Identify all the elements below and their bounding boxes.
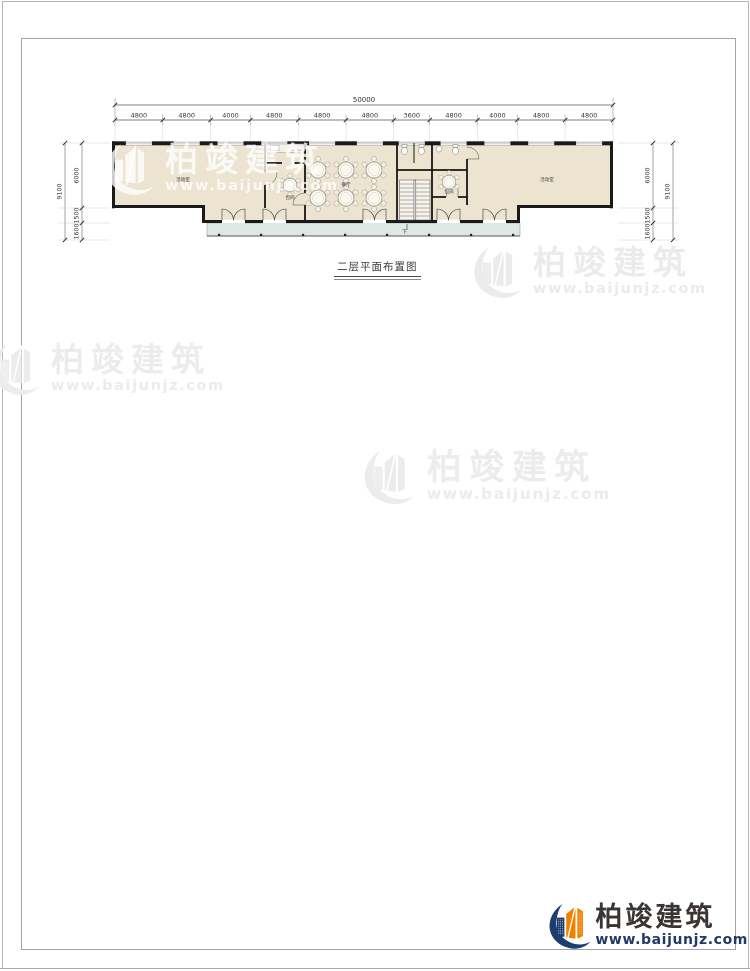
watermark-name: 柏竣建筑 <box>51 343 225 376</box>
dim-right-overall: 9100 <box>665 183 672 199</box>
sheet-bottom-edge <box>0 968 750 970</box>
dim-seg: 4800 <box>445 112 462 120</box>
dim-seg: 4800 <box>581 112 598 120</box>
dim-left-seg: 6000 <box>74 167 81 183</box>
dim-left-seg: 1500 <box>74 207 81 223</box>
drawing-caption: 二层平面布置图 <box>334 259 421 277</box>
top-dimensions: 50000 4800 4800 4000 4800 4800 4800 3600… <box>113 96 615 141</box>
brand-name: 柏竣建筑 <box>595 903 748 933</box>
dim-seg: 4800 <box>533 112 550 120</box>
watermark-name: 柏竣建筑 <box>165 143 339 176</box>
watermark-logo-icon <box>0 340 42 396</box>
drawing-caption-text: 二层平面布置图 <box>337 261 418 273</box>
right-dimensions: 6000 1500 1600 9100 <box>618 141 679 242</box>
watermark-name: 柏竣建筑 <box>427 449 611 484</box>
dim-seg: 4800 <box>131 112 148 120</box>
brand-logo-icon <box>544 887 593 963</box>
dim-seg: 4800 <box>362 112 379 120</box>
dim-seg: 4000 <box>489 112 506 120</box>
watermark-url: www.baijunjz.com <box>533 282 707 297</box>
watermark-url: www.baijunjz.com <box>165 179 339 194</box>
watermark-logo-icon <box>358 446 417 505</box>
dim-left-seg: 1600 <box>74 223 81 239</box>
watermark: 柏竣建筑 www.baijunjz.com <box>358 446 611 505</box>
room-label-right: 活动室 <box>540 176 554 183</box>
watermark: 柏竣建筑 www.baijunjz.com <box>0 340 225 396</box>
dim-seg: 4800 <box>266 112 283 120</box>
brand-text: 柏竣建筑 www.baijunjz.com <box>595 903 748 948</box>
dim-seg: 3600 <box>404 112 421 120</box>
brand-url: www.baijunjz.com <box>595 933 748 947</box>
balcony <box>207 223 520 236</box>
dim-total: 50000 <box>353 96 375 104</box>
watermark-text: 柏竣建筑 www.baijunjz.com <box>51 343 225 394</box>
watermark-text: 柏竣建筑 www.baijunjz.com <box>427 449 611 503</box>
dim-seg: 4800 <box>178 112 195 120</box>
stair-down-label: 下 <box>402 230 407 236</box>
dim-seg: 4000 <box>222 112 239 120</box>
dim-seg: 4800 <box>314 112 331 120</box>
dim-right-seg: 1600 <box>645 223 652 239</box>
watermark-text: 柏竣建筑 www.baijunjz.com <box>165 143 339 194</box>
dim-right-seg: 6000 <box>645 167 652 183</box>
watermark-url: www.baijunjz.com <box>51 379 225 394</box>
watermark: 柏竣建筑 www.baijunjz.com <box>100 140 339 196</box>
room-label-private-b: 包间 <box>444 188 454 195</box>
watermark-url: www.baijunjz.com <box>427 487 611 502</box>
watermark-logo-icon <box>100 140 156 196</box>
brand-logo: 柏竣建筑 www.baijunjz.com <box>544 886 748 964</box>
room-label-dining: 餐厅 <box>341 181 351 188</box>
dim-right-seg: 1500 <box>645 207 652 223</box>
dim-left-overall: 9100 <box>57 183 64 199</box>
drawing-sheet: 50000 4800 4800 4000 4800 4800 4800 3600… <box>0 0 750 971</box>
